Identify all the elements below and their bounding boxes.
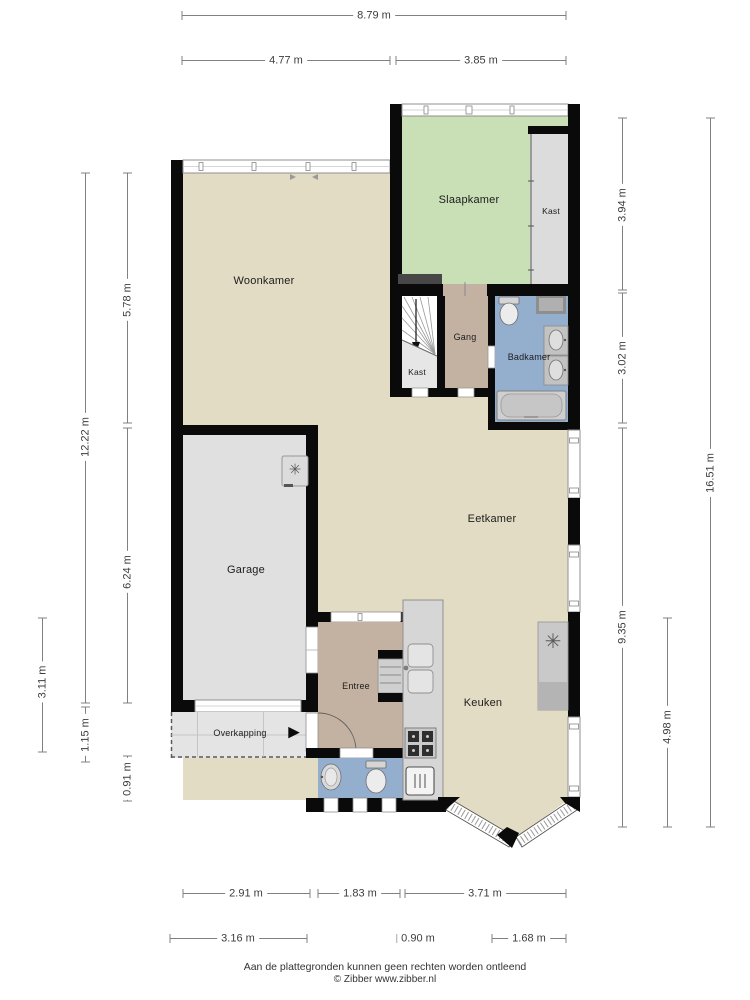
radiator — [398, 274, 442, 284]
dim-left-total: 12.22 m — [80, 413, 93, 461]
room-label-entree: Entree — [342, 681, 370, 691]
dim-width-left: 4.77 m — [265, 55, 307, 68]
washbasin-icon — [544, 326, 568, 355]
dim-right-total: 16.51 m — [705, 449, 718, 497]
room-label-woonkamer: Woonkamer — [234, 275, 295, 287]
gang-floor — [445, 296, 488, 388]
toilet-icon — [366, 761, 386, 793]
gang-opening — [458, 388, 474, 397]
dim-width-right: 3.85 m — [460, 55, 502, 68]
toilet-door — [340, 748, 373, 758]
floorplan-canvas: Woonkamer Slaapkamer Kast Gang Kast Badk… — [0, 0, 750, 1000]
oven-icon — [406, 767, 434, 795]
dim-width-total: 8.79 m — [353, 10, 395, 23]
window-divider — [306, 163, 310, 171]
footer: Aan de plattegronden kunnen geen rechten… — [20, 961, 750, 985]
room-label-badkamer: Badkamer — [508, 352, 551, 362]
dim-left-outer-bottom: 3.11 m — [37, 662, 50, 703]
floorplan-drawing — [0, 0, 750, 1000]
footer-disclaimer: Aan de plattegronden kunnen geen rechten… — [20, 961, 750, 973]
window — [382, 798, 396, 812]
window-divider — [352, 163, 356, 171]
window — [324, 798, 338, 812]
dim-left-top: 5.78 m — [122, 279, 135, 321]
dim-bottom-inner-1: 2.91 m — [225, 888, 267, 901]
footer-credit: © Zibber www.zibber.nl — [20, 974, 750, 985]
fan-icon: ✳ — [545, 632, 562, 652]
kast-door — [412, 388, 428, 397]
dim-left-middle: 6.24 m — [122, 551, 135, 593]
badkamer-block — [488, 296, 580, 430]
dim-right-middle: 3.02 m — [617, 337, 630, 379]
fan-icon: ✳ — [289, 463, 302, 478]
dim-right-bottom: 9.35 m — [617, 606, 630, 648]
dim-left-bottom-b: 0.91 m — [122, 758, 135, 800]
room-label-kast-slaapkamer: Kast — [542, 206, 560, 216]
right-wall — [568, 430, 580, 797]
window-divider — [199, 163, 203, 171]
dim-bottom-outer-1: 3.16 m — [217, 933, 259, 946]
window-divider — [424, 106, 428, 114]
room-label-garage: Garage — [227, 564, 265, 576]
room-label-slaapkamer: Slaapkamer — [439, 194, 500, 206]
toilet-icon — [499, 297, 519, 325]
window-divider — [466, 106, 472, 114]
room-label-overkapping: Overkapping — [213, 728, 266, 738]
stove-icon — [405, 728, 436, 758]
room-label-eetkamer: Eetkamer — [468, 513, 517, 525]
room-label-gang: Gang — [454, 332, 477, 342]
dim-right-inner-bottom: 4.98 m — [662, 706, 675, 748]
dim-bottom-inner-2: 1.83 m — [339, 888, 381, 901]
dim-bottom-outer-2: 0.90 m — [397, 933, 439, 946]
bathtub-icon — [497, 391, 566, 420]
dim-bottom-inner-3: 3.71 m — [464, 888, 506, 901]
washbasin-icon — [321, 764, 341, 790]
room-label-kast-trap: Kast — [408, 367, 426, 377]
badkamer-door — [488, 346, 495, 368]
room-label-keuken: Keuken — [464, 697, 503, 709]
meterkast — [378, 650, 403, 702]
entrance-arrow-icon: ▶ — [288, 725, 300, 740]
window-divider — [510, 106, 514, 114]
window — [353, 798, 367, 812]
dim-bottom-outer-3: 1.68 m — [508, 933, 550, 946]
dim-left-bottom-a: 1.15 m — [80, 714, 93, 756]
window-divider — [252, 163, 256, 171]
dim-right-top: 3.94 m — [617, 184, 630, 226]
window — [331, 612, 401, 622]
front-door-opening — [306, 713, 318, 751]
